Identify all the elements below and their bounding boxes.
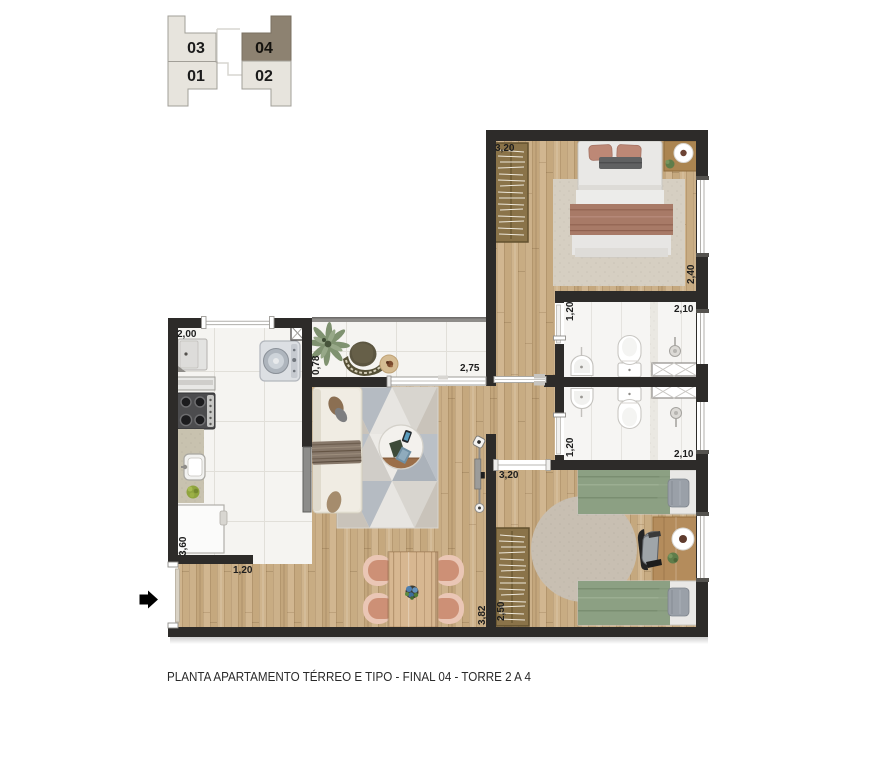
- svg-text:3,60: 3,60: [178, 536, 189, 556]
- svg-text:1,20: 1,20: [565, 301, 576, 321]
- svg-text:0,78: 0,78: [311, 355, 322, 375]
- svg-text:1,20: 1,20: [565, 437, 576, 457]
- svg-text:3,20: 3,20: [499, 470, 519, 481]
- svg-text:01: 01: [187, 68, 205, 85]
- svg-text:02: 02: [255, 68, 273, 85]
- svg-text:2,75: 2,75: [460, 363, 480, 374]
- svg-text:3,82: 3,82: [477, 605, 488, 625]
- svg-text:1,20: 1,20: [233, 565, 253, 576]
- svg-text:PLANTA APARTAMENTO TÉRREO E TI: PLANTA APARTAMENTO TÉRREO E TIPO - FINAL…: [167, 669, 531, 684]
- svg-text:2,00: 2,00: [177, 329, 197, 340]
- svg-text:03: 03: [187, 40, 205, 57]
- svg-text:2,40: 2,40: [686, 264, 697, 284]
- svg-text:3,20: 3,20: [495, 143, 515, 154]
- svg-text:2,50: 2,50: [496, 601, 507, 621]
- svg-text:2,10: 2,10: [674, 449, 694, 460]
- svg-text:2,10: 2,10: [674, 304, 694, 315]
- svg-text:04: 04: [255, 40, 273, 57]
